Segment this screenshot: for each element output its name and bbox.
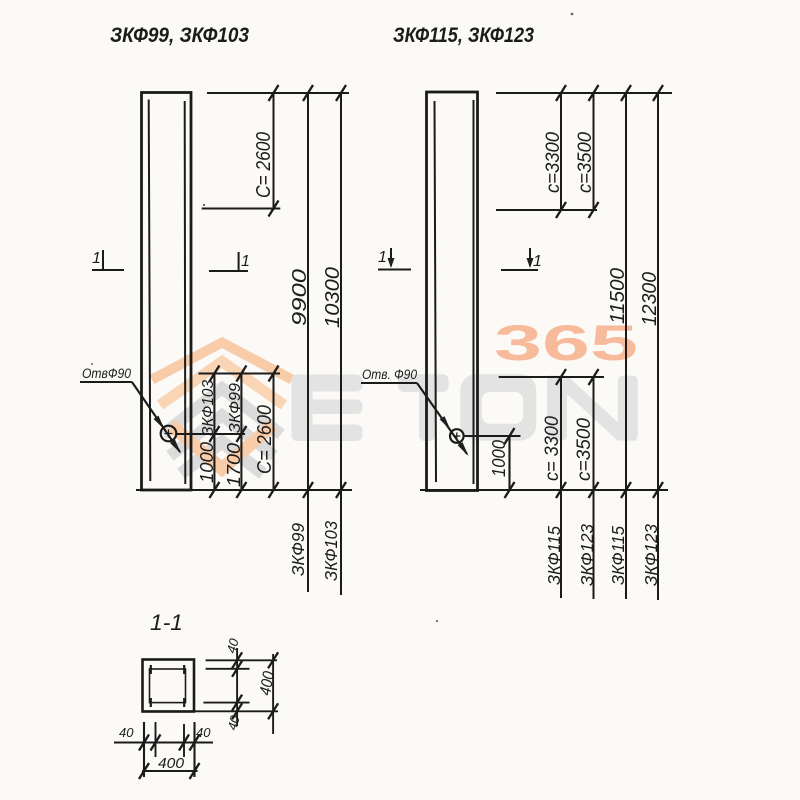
svg-text:ЗКФ103: ЗКФ103 bbox=[321, 521, 341, 581]
svg-text:ЗКФ115, ЗКФ123: ЗКФ115, ЗКФ123 bbox=[393, 24, 534, 47]
svg-text:Отв. Ф90: Отв. Ф90 bbox=[362, 366, 417, 382]
svg-text:c=3300: c=3300 bbox=[543, 132, 564, 193]
svg-text:c=3500: c=3500 bbox=[574, 418, 595, 481]
svg-text:12300: 12300 bbox=[639, 272, 661, 326]
svg-text:C= 2600: C= 2600 bbox=[254, 405, 276, 474]
svg-text:10300: 10300 bbox=[322, 267, 344, 328]
svg-text:ЗКФ99: ЗКФ99 bbox=[288, 523, 308, 576]
svg-text:11500: 11500 bbox=[607, 268, 629, 324]
svg-text:1: 1 bbox=[533, 253, 542, 270]
svg-text:ЗКФ103: ЗКФ103 bbox=[200, 380, 217, 436]
svg-text:C= 2600: C= 2600 bbox=[253, 132, 275, 198]
svg-text:1: 1 bbox=[241, 253, 250, 270]
svg-text:c=3500: c=3500 bbox=[575, 132, 596, 193]
svg-text:40: 40 bbox=[196, 725, 211, 740]
svg-text:ЗКФ123: ЗКФ123 bbox=[641, 524, 661, 586]
svg-text:ЗКФ115: ЗКФ115 bbox=[608, 526, 628, 585]
svg-text:ОтвФ90: ОтвФ90 bbox=[82, 365, 131, 381]
svg-text:40: 40 bbox=[119, 725, 134, 740]
svg-text:1: 1 bbox=[92, 250, 101, 267]
svg-text:1000: 1000 bbox=[197, 442, 217, 483]
svg-text:ЗКФ115: ЗКФ115 bbox=[544, 526, 564, 585]
svg-text:1: 1 bbox=[378, 249, 387, 266]
svg-text:1-1: 1-1 bbox=[150, 610, 183, 635]
svg-text:9900: 9900 bbox=[289, 269, 311, 326]
svg-text:ЗКФ123: ЗКФ123 bbox=[577, 524, 597, 586]
svg-text:c= 3300: c= 3300 bbox=[542, 416, 563, 481]
svg-text:ЗКФ99: ЗКФ99 bbox=[227, 383, 244, 433]
svg-text:1000: 1000 bbox=[489, 440, 509, 477]
svg-text:1700: 1700 bbox=[224, 443, 244, 487]
svg-text:ЗКФ99, ЗКФ103: ЗКФ99, ЗКФ103 bbox=[110, 24, 249, 47]
svg-text:400: 400 bbox=[158, 755, 185, 772]
